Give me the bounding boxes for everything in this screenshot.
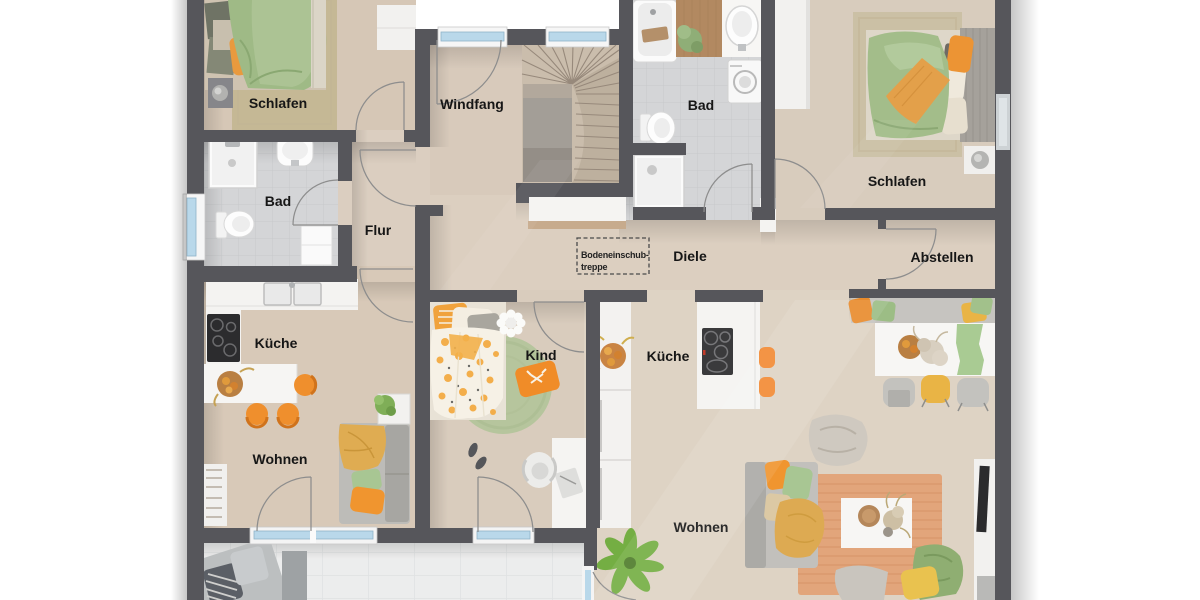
svg-text:Küche: Küche [647,348,690,364]
svg-text:Wohnen: Wohnen [253,451,308,467]
svg-text:Abstellen: Abstellen [910,249,973,265]
svg-text:Bodeneinschub-: Bodeneinschub- [581,250,649,260]
svg-text:Schlafen: Schlafen [868,173,926,189]
svg-text:Windfang: Windfang [440,96,504,112]
svg-text:Bad: Bad [688,97,714,113]
svg-text:Schlafen: Schlafen [249,95,307,111]
svg-text:Küche: Küche [255,335,298,351]
svg-text:Diele: Diele [673,248,707,264]
svg-text:Bad: Bad [265,193,291,209]
svg-text:Flur: Flur [365,222,392,238]
svg-text:Kind: Kind [525,347,556,363]
svg-text:treppe: treppe [581,262,608,272]
